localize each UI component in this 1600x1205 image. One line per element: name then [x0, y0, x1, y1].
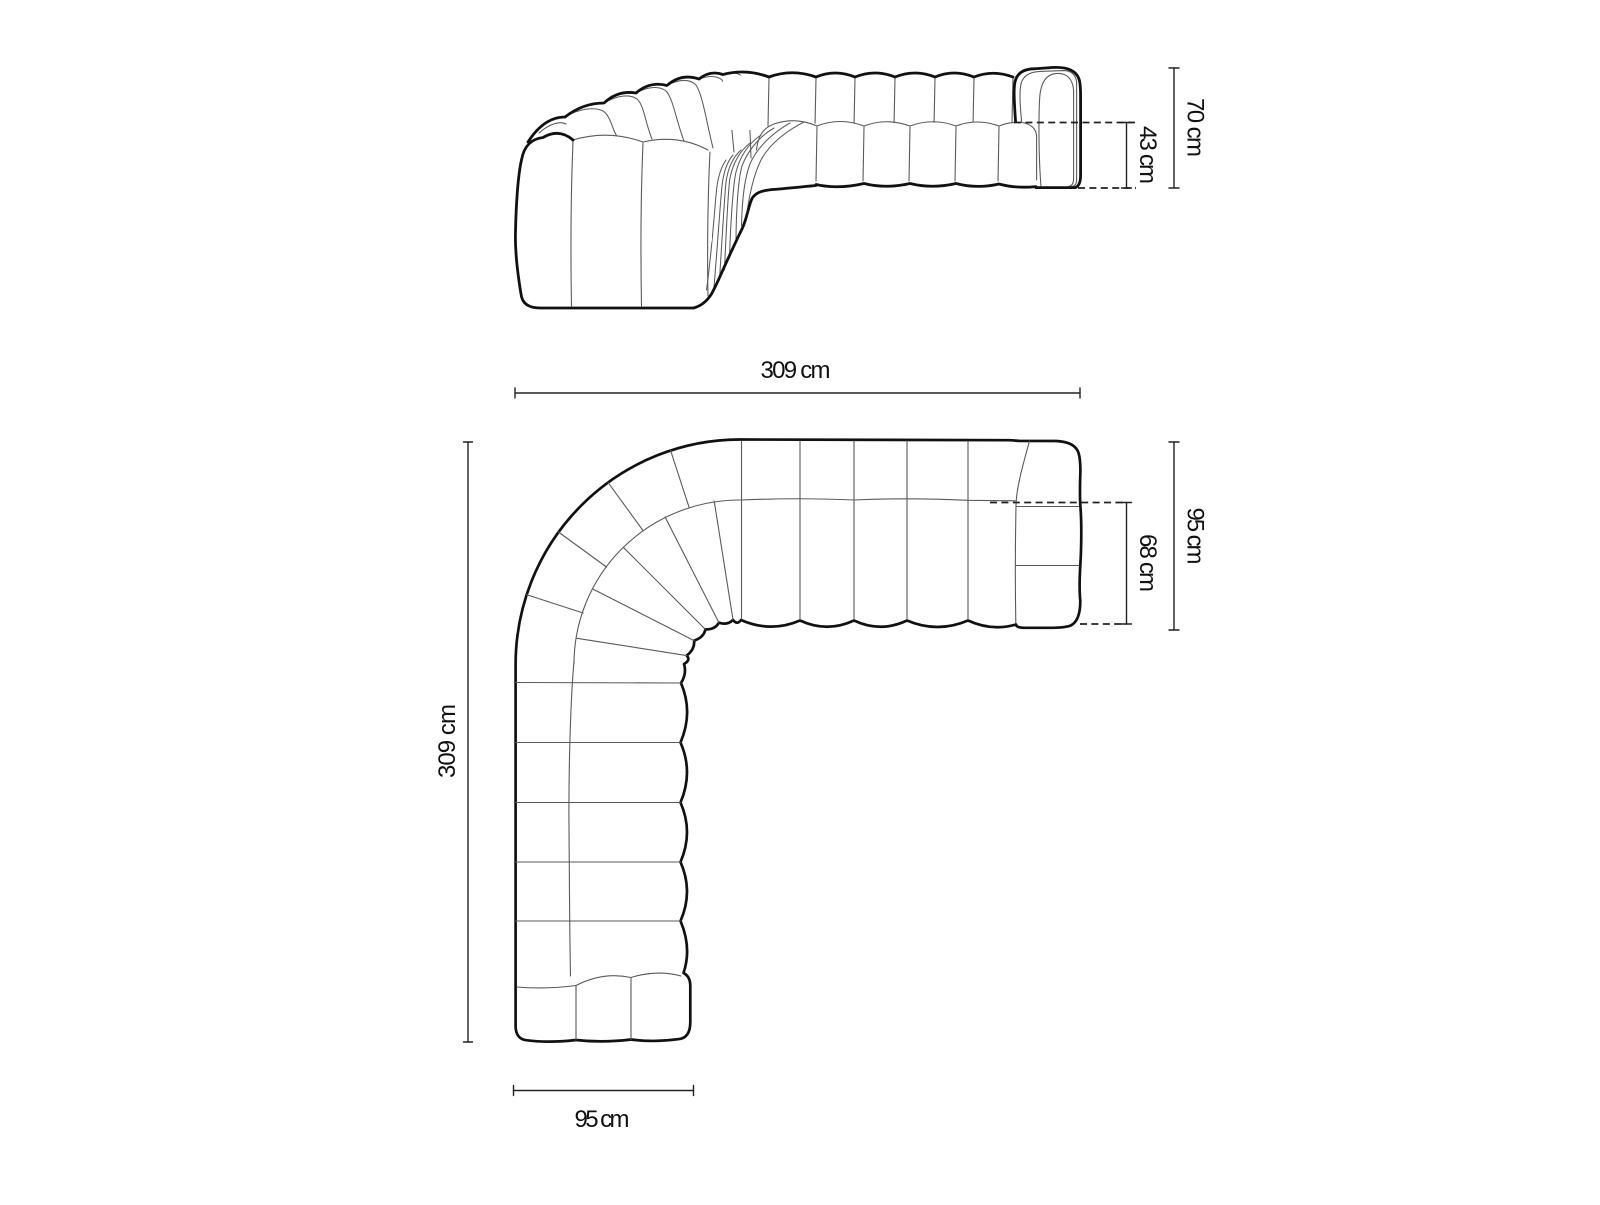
svg-text:95 cm: 95 cm [575, 1106, 630, 1133]
svg-text:43 cm: 43 cm [1134, 126, 1161, 184]
svg-text:95 cm: 95 cm [1182, 508, 1209, 565]
svg-text:309 cm: 309 cm [434, 704, 461, 778]
svg-text:70 cm: 70 cm [1182, 98, 1209, 157]
svg-text:309 cm: 309 cm [761, 357, 831, 384]
svg-text:68 cm: 68 cm [1134, 534, 1161, 592]
